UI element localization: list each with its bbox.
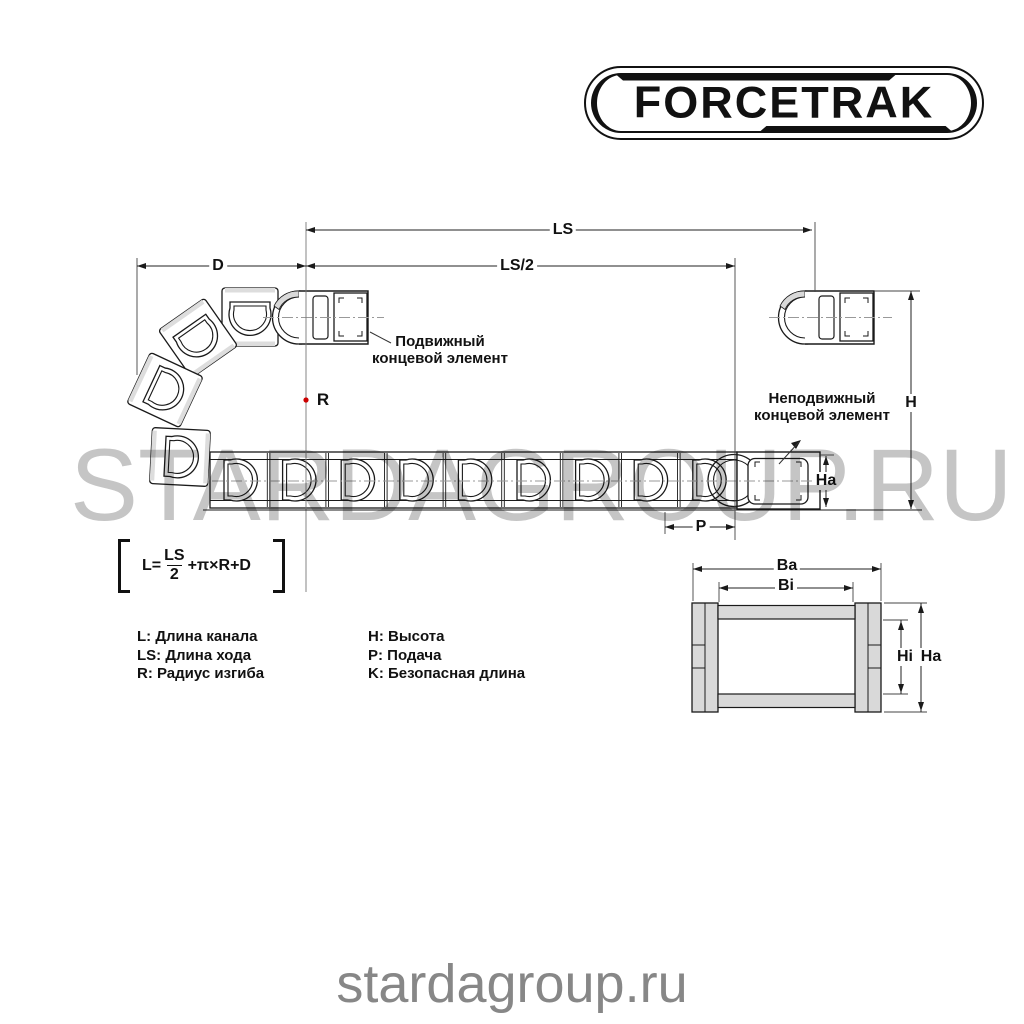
annotation-movable-end: Подвижный концевой элемент — [365, 333, 515, 367]
dim-label-ls-half: LS/2 — [497, 257, 537, 275]
length-formula: L= LS 2 +π×R+D — [118, 539, 285, 593]
legend-left-column: L: Длина канала LS: Длина хода R: Радиус… — [137, 628, 264, 684]
dim-label-p: P — [693, 518, 710, 536]
formula-fraction: LS 2 — [162, 548, 186, 584]
legend-item-k: K: Безопасная длина — [368, 665, 525, 684]
legend-item-h: H: Высота — [368, 628, 525, 647]
legend-right-column: H: Высота P: Подача K: Безопасная длина — [368, 628, 525, 684]
formula-lhs: L= — [142, 557, 161, 575]
annotation-fixed-line2: концевой элемент — [747, 407, 897, 424]
dim-label-h: H — [902, 394, 920, 412]
chain-bottom-run — [210, 452, 737, 508]
page: FORCETRAK LS LS/2 D R H Ha P Ba Bi Hi Ha… — [0, 0, 1024, 1024]
watermark-small: stardagroup.ru — [336, 953, 687, 1015]
formula-bracket-left — [118, 539, 130, 593]
formula-denominator: 2 — [167, 565, 182, 584]
dim-label-ha-section: Ha — [918, 648, 944, 666]
dim-label-ba: Ba — [774, 557, 800, 575]
dim-label-hi: Hi — [894, 648, 916, 666]
annotation-movable-line1: Подвижный — [365, 333, 515, 350]
dim-label-r: R — [314, 390, 332, 410]
annotation-fixed-end: Неподвижный концевой элемент — [747, 390, 897, 424]
dim-label-ls: LS — [550, 221, 576, 239]
cross-section — [692, 603, 881, 712]
formula-numerator: LS — [162, 548, 186, 565]
radius-center-dot — [303, 397, 308, 402]
legend-item-r: R: Радиус изгиба — [137, 665, 264, 684]
dim-label-ha: Ha — [813, 472, 839, 490]
dim-label-d: D — [209, 257, 227, 275]
legend-item-p: P: Подача — [368, 647, 525, 666]
technical-drawing — [0, 0, 1024, 1024]
legend-item-ls: LS: Длина хода — [137, 647, 264, 666]
dim-label-bi: Bi — [775, 577, 797, 595]
formula-bracket-right — [273, 539, 285, 593]
annotation-fixed-line1: Неподвижный — [747, 390, 897, 407]
legend-item-l: L: Длина канала — [137, 628, 264, 647]
formula-tail: +π×R+D — [188, 557, 251, 575]
annotation-movable-line2: концевой элемент — [365, 350, 515, 367]
